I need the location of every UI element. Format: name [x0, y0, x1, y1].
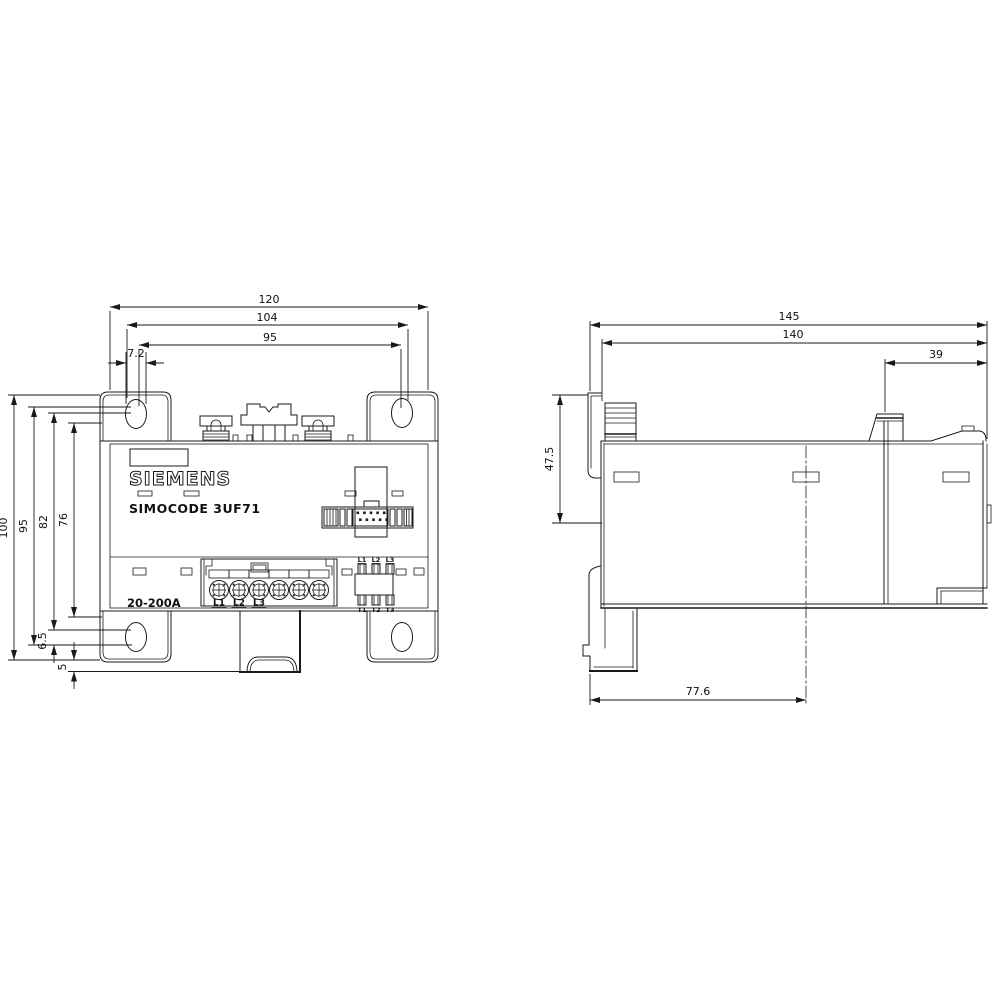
front-left-dimensions: 100 95 82 76 6.5 5 [0, 395, 240, 689]
side-top-dimensions: 145 140 39 [590, 310, 987, 439]
side-body [583, 393, 991, 706]
side-rear-tab [869, 414, 903, 441]
aux-label-l2: L2 [372, 556, 381, 564]
dim-slot-width: 7.2 [127, 347, 145, 360]
side-right-nub [987, 505, 991, 523]
lower-slot-b [181, 568, 192, 575]
dimension-drawing: 120 104 95 7.2 100 95 82 76 [0, 0, 1000, 1000]
dim-slot-offset: 6.5 [36, 632, 49, 650]
front-lower-section: 20-200A [127, 556, 424, 672]
rear-flange-upper [588, 393, 601, 478]
top-slot-d [348, 435, 353, 441]
lower-slot-c [414, 568, 424, 575]
front-upper-panel: SIEMENS SIMOCODE 3UF71 [129, 449, 413, 537]
front-view: 120 104 95 7.2 100 95 82 76 [0, 293, 438, 689]
side-bottom-dimension: 77.6 [590, 674, 806, 705]
top-slot-a [233, 435, 238, 441]
dimension-drawing-canvas: 120 104 95 7.2 100 95 82 76 [0, 0, 1000, 1000]
side-clamp-block [605, 403, 636, 441]
dim-height-total: 100 [0, 518, 10, 539]
screw-terminal-5 [290, 581, 309, 600]
aux-label-t3: T3 [386, 606, 395, 614]
side-slot-a [614, 472, 639, 482]
label-window [130, 449, 188, 466]
busbar-tab-right [302, 416, 334, 441]
panel-slot-left [138, 491, 152, 496]
mounting-hole-bottom-left [126, 623, 147, 652]
dim-rail-height: 47.5 [543, 447, 556, 472]
bottom-cable-tab [240, 611, 300, 672]
dim-width-inner: 95 [263, 331, 277, 344]
dim-height-82: 82 [37, 515, 50, 529]
screw-terminal-1 [210, 581, 229, 600]
screw-terminal-6 [310, 581, 329, 600]
side-foot [583, 608, 637, 671]
dim-width-total: 120 [259, 293, 280, 306]
side-front-wedge [931, 426, 986, 441]
aux-label-l1: L1 [358, 556, 367, 564]
screw-terminal-3 [250, 581, 269, 600]
terminal-label-l1: L1 [213, 599, 225, 609]
connector-pins [357, 512, 389, 522]
dim-depth-front: 39 [929, 348, 943, 361]
side-view: 145 140 39 47.5 [543, 310, 991, 706]
mounting-hole-top-right [392, 399, 413, 428]
side-left-dimension: 47.5 [543, 395, 602, 523]
dim-height-76: 76 [57, 513, 70, 527]
lower-slot-a [133, 568, 146, 575]
dim-foot-offset: 5 [56, 664, 69, 671]
aux-label-l3: L3 [386, 556, 395, 564]
screw-terminal-2 [230, 581, 249, 600]
mounting-hole-top-left [126, 400, 147, 429]
main-terminal-block: L1 L2 L3 [201, 559, 337, 609]
rear-flange-lower [589, 566, 601, 645]
aux-label-t1: T1 [358, 606, 367, 614]
system-interface-connector [322, 467, 413, 537]
aux-label-t2: T2 [372, 606, 381, 614]
dim-height-95: 95 [17, 519, 30, 533]
siemens-logo: SIEMENS [129, 468, 231, 490]
aux-terminal-block: L1 L2 L3 T1 T2 T3 [342, 556, 406, 614]
dim-foot-depth: 77.6 [686, 685, 711, 698]
center-latch [241, 404, 297, 441]
terminal-label-l3: L3 [253, 599, 265, 609]
dim-depth-total: 145 [779, 310, 800, 323]
panel-slot-right [184, 491, 199, 496]
side-slot-c [943, 472, 969, 482]
top-slot-c [293, 435, 298, 441]
front-top-tabs [200, 404, 353, 441]
front-top-dimensions: 120 104 95 7.2 [108, 293, 428, 408]
connector-latch-right [404, 509, 412, 526]
terminal-label-l2: L2 [233, 599, 245, 609]
screw-terminal-4 [270, 581, 289, 600]
dim-depth-body: 140 [783, 328, 804, 341]
model-label: SIMOCODE 3UF71 [129, 501, 261, 516]
current-range-label: 20-200A [127, 596, 181, 610]
mounting-hole-bottom-right [392, 623, 413, 652]
top-slot-b [247, 435, 252, 441]
dim-width-holes: 104 [257, 311, 278, 324]
busbar-tab-left [200, 416, 232, 441]
